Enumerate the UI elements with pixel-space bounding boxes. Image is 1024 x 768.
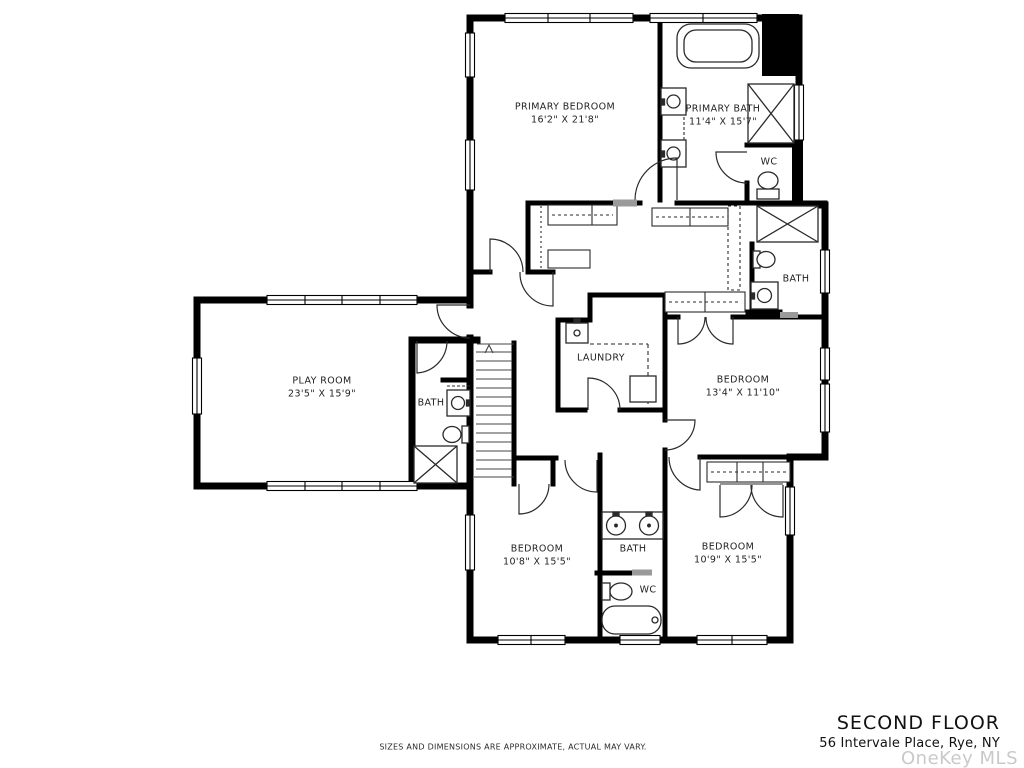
window [267,296,417,305]
door-arc [678,317,705,344]
window [620,636,660,645]
window [466,33,475,77]
window [650,14,757,23]
floor-plan-drawing [0,0,1024,768]
toilet-icon [443,426,469,443]
toilet-icon [602,583,632,600]
sink-icon [447,390,470,416]
door-arc [706,317,733,344]
title-block: SECOND FLOOR 56 Intervale Place, Rye, NY [819,712,1000,751]
window [821,384,830,432]
door-arc [519,484,549,514]
sink-icon [661,140,686,167]
floor-title: SECOND FLOOR [819,712,1000,734]
window [498,636,565,645]
double-vanity-icon [602,512,663,539]
linen-closet [630,376,656,402]
door-arc [665,420,695,450]
staircase [474,344,514,477]
floor-plan-page: PRIMARY BEDROOM 16'2" X 21'8" PRIMARY BA… [0,0,1024,768]
door-arc [588,378,620,410]
door-arc [720,485,752,517]
onekey-mls-watermark: OneKey MLS [901,748,1018,768]
window [821,348,830,380]
window [466,140,475,190]
door-arc [565,460,597,492]
windows [193,14,830,645]
shower-icon [748,84,794,143]
door-arc [520,272,553,306]
window [193,358,202,414]
toilet-icon [753,251,775,268]
bathtub-icon [677,24,759,68]
laundry-sink-icon [566,319,588,343]
closet-x-icon [757,206,818,242]
door-arc [417,341,447,373]
door-arc [751,485,783,517]
window [697,636,767,645]
door-arc [716,152,747,183]
exterior-walls [197,18,825,640]
door-arc [669,457,700,490]
closets-cabinets [447,92,790,484]
sink-icon [751,282,778,309]
window [795,85,804,140]
door-arc [437,305,470,338]
disclaimer-text: SIZES AND DIMENSIONS ARE APPROXIMATE, AC… [379,743,646,752]
window [821,250,830,293]
window [786,487,795,535]
sink-icon [661,88,686,115]
bathtub-icon [602,606,661,634]
shower-icon [414,446,457,483]
toilet-icon [757,172,779,199]
window [505,14,633,23]
window [267,482,417,491]
door-arc [490,239,523,272]
window [466,515,475,570]
